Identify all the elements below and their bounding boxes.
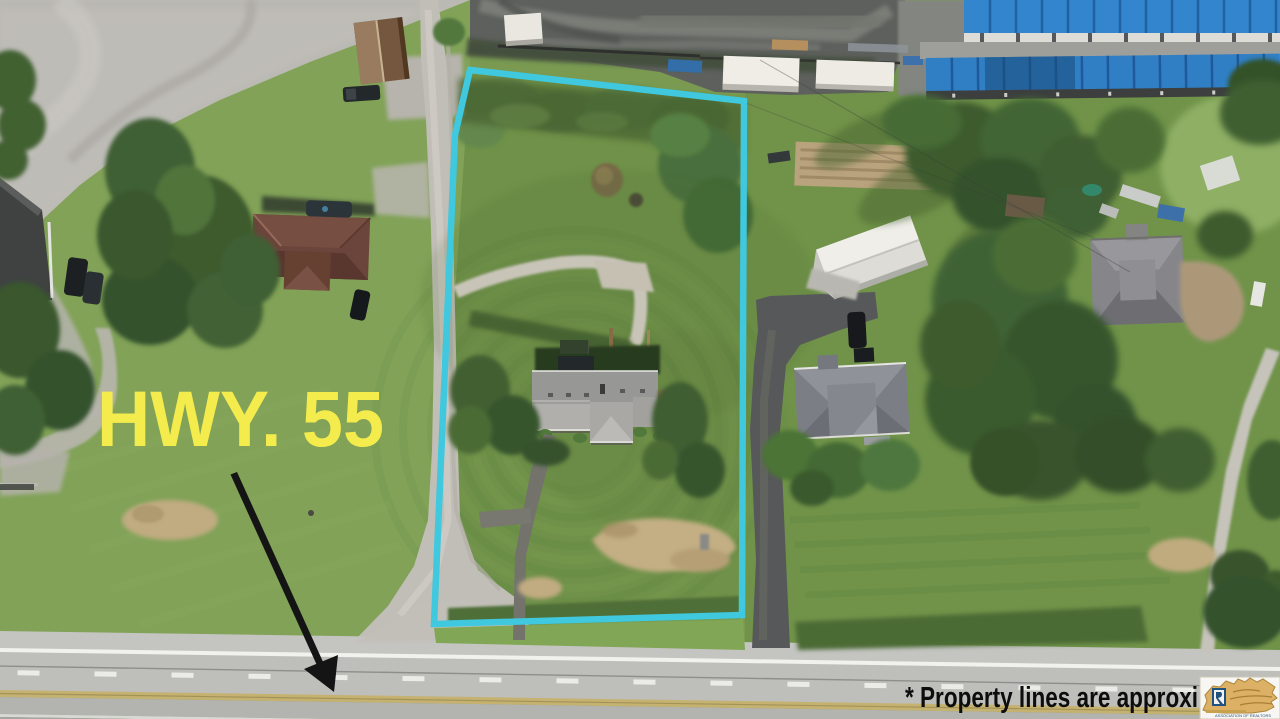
- svg-text:* Property lines are approxi: * Property lines are approxi: [905, 682, 1198, 714]
- svg-text:ASSOCIATION OF REALTORS: ASSOCIATION OF REALTORS: [1215, 713, 1271, 718]
- svg-text:HWY. 55: HWY. 55: [97, 374, 384, 463]
